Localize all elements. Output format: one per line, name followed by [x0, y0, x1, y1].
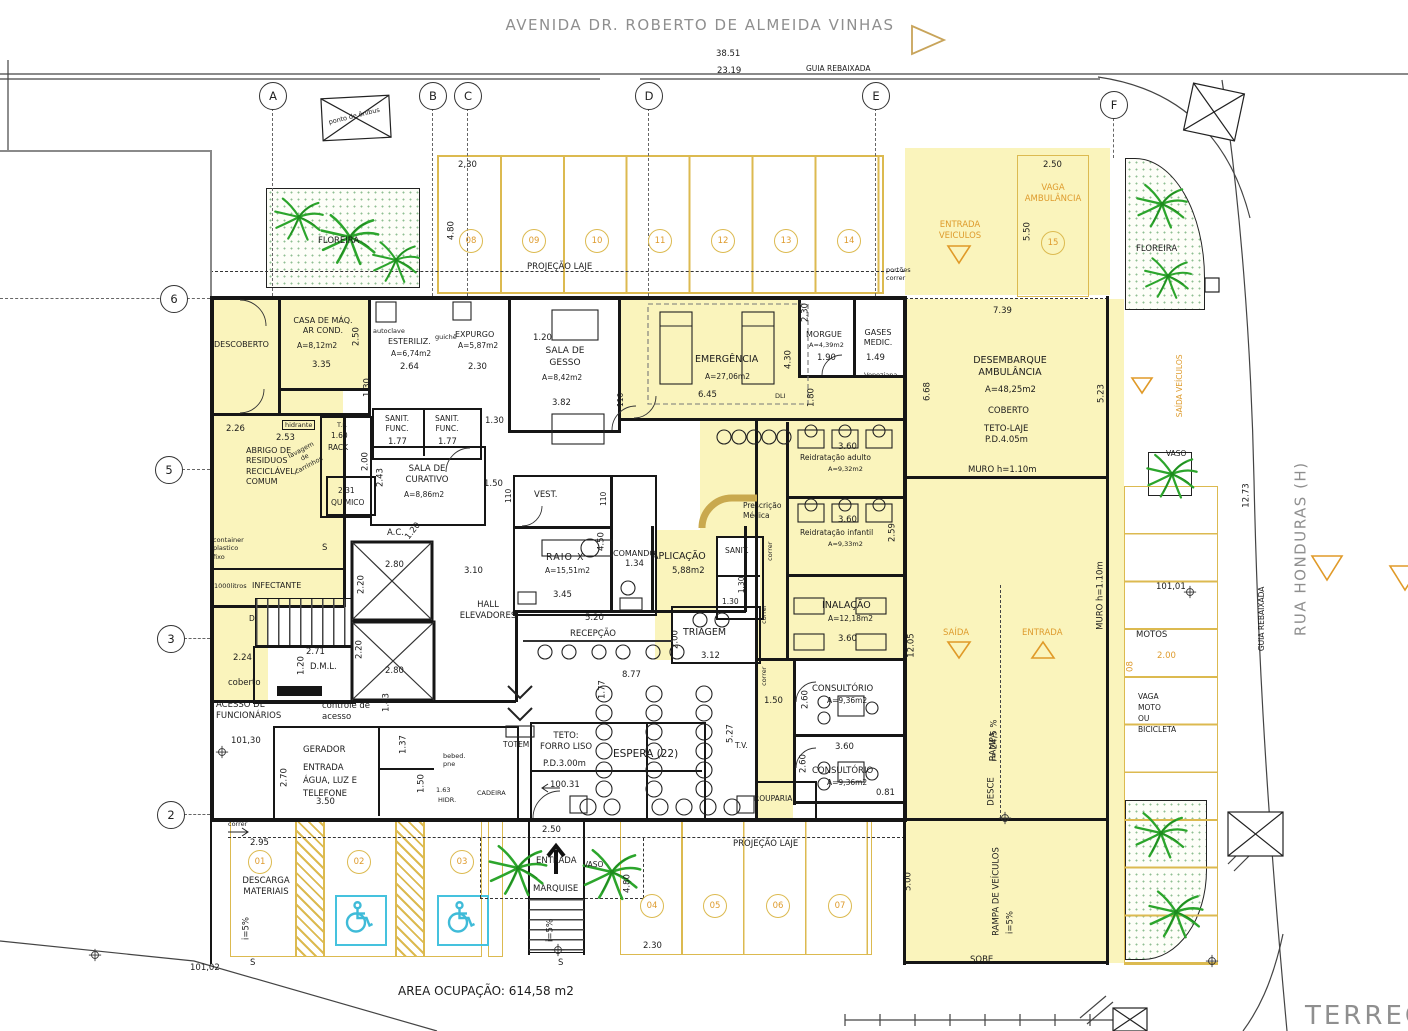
dim-668: 6.68 [922, 372, 933, 412]
portoes-correr: portões correr [886, 266, 911, 283]
stall-number: 02 [354, 857, 365, 867]
gerador-w: 3.50 [316, 797, 335, 808]
dim-295: 2.95 [250, 838, 269, 849]
acesso-name: ACESSO DE FUNCIONÁRIOS [216, 700, 281, 722]
wall-i6 [508, 430, 621, 433]
saida-ramp: SAÍDA [943, 628, 969, 639]
reidrat-i-name: Reidratação infantil [800, 528, 873, 538]
wall-hall-corr [515, 610, 518, 702]
bottom-stall-height: 4.80 [622, 864, 633, 904]
ramp-centerline [1000, 585, 1001, 818]
wall-infectante [210, 568, 344, 570]
wall-muro [905, 476, 1106, 479]
marquise-label: MARQUISE [533, 884, 578, 895]
raiox-d110: 110 [599, 485, 609, 513]
acesso-ref: 101,30 [231, 736, 261, 747]
emergencia-d180: 1.80 [806, 381, 817, 415]
acesso-coberto: coberto [228, 678, 261, 689]
tv-d150: 1.50 [764, 696, 783, 707]
sanitc-d1: 1.30 [737, 570, 747, 600]
emergencia-d430: 4.30 [783, 342, 794, 378]
floor-plan-canvas: A B C D E F 6 5 3 2 08 09 10 11 12 13 14… [0, 0, 1408, 1031]
espera-ref: 100.31 [550, 780, 580, 791]
expurgo-area: A=5,87m2 [458, 341, 498, 351]
dml-w: 2.71 [306, 647, 325, 658]
desce-label: DESCE [986, 769, 997, 815]
wall-comando-w [610, 526, 613, 612]
prescricao-label: Prescrição Médica [743, 501, 781, 521]
parking-hatch-1 [295, 818, 325, 957]
raiox-name: RAIO X [546, 552, 585, 564]
ref-101-02: 101,02 [190, 963, 220, 974]
casa-maq-name: CASA DE MÁQ. AR COND. [285, 316, 361, 337]
consult2-area: A=9,36m2 [827, 778, 867, 788]
grid-label: 6 [170, 292, 177, 306]
bottom-stall-width: 2.30 [643, 941, 662, 952]
curativo-name: SALA DE CURATIVO [394, 464, 460, 486]
dim-143: 1.43 [381, 686, 392, 720]
tv-name: T.V. [735, 741, 748, 751]
floreira-tl: FLOREIRA [318, 236, 359, 247]
sanit-func1-w: 1.77 [388, 437, 407, 448]
avenue-dim: 38.51 [716, 49, 740, 60]
grid-col-a: A [259, 82, 287, 110]
controle-label: controle de acesso [322, 701, 370, 723]
wall-ger-bath-v [378, 726, 380, 816]
wall-consult-h1 [793, 734, 904, 737]
curativo-d150: 1.50 [484, 479, 503, 490]
top-stall-width: 2,30 [458, 160, 477, 171]
stall-09: 09 [522, 229, 546, 253]
casa-maq-area: A=8,12m2 [297, 341, 337, 351]
grid-line-a [272, 108, 273, 296]
expurgo-name: EXPURGO [455, 330, 494, 340]
emergencia-w: 6.45 [698, 390, 717, 401]
parking-hatch-2 [395, 818, 425, 957]
dim-1205: 12.05 [906, 624, 917, 668]
grid-row-6: 6 [160, 285, 188, 313]
avenue-name: AVENIDA DR. ROBERTO DE ALMEIDA VINHAS [500, 16, 900, 36]
grid-row-5: 5 [155, 456, 183, 484]
stall-12: 12 [711, 229, 735, 253]
quimico-name: QUÍMICO [331, 498, 364, 508]
sanitc-name: SANIT. [725, 546, 749, 556]
property-line-left [210, 150, 212, 296]
dim-500: 5.00 [903, 862, 914, 902]
vaso-bottom: VASO [583, 860, 603, 870]
stall-number: 05 [710, 901, 721, 911]
grid-line-e [875, 108, 876, 296]
dim-523: 5.23 [1096, 374, 1107, 414]
morgue-w: 1.90 [817, 353, 836, 364]
dml-h: 1.20 [296, 649, 307, 683]
s-left: S [250, 958, 255, 969]
aplicacao-area: 5,88m2 [672, 566, 705, 577]
area-ocupacao: AREA OCUPAÇÃO: 614,58 m2 [398, 984, 574, 1000]
consult2-name: CONSULTÓRIO [812, 766, 873, 777]
ref-101-01: 101,01 [1156, 582, 1186, 593]
desembarque-area: A=48,25m2 [985, 385, 1036, 396]
stall-number: 07 [835, 901, 846, 911]
wall-consult-h2 [793, 801, 904, 804]
handicap-stall-2 [437, 895, 489, 946]
inalacao-name: INALAÇÃO [822, 600, 871, 612]
stall-13: 13 [774, 229, 798, 253]
grid-line-5 [182, 469, 210, 470]
saida-veiculos: SAÍDA VEÍCULOS [1175, 346, 1185, 426]
parking-strip-entry [488, 818, 503, 957]
grid-line-3 [184, 638, 210, 639]
guia-rebaixada-side: GUIA REBAIXADA [1257, 569, 1267, 669]
expurgo-w: 2.30 [468, 362, 487, 373]
stall-01: 01 [248, 850, 272, 874]
wall-ramp-right [1106, 818, 1109, 965]
rack-h: 2.00 [360, 442, 371, 482]
wall-ram-bottom [903, 961, 1109, 964]
dim-253: 2.53 [276, 433, 295, 444]
guia-rebaixada-top: GUIA REBAIXADA [806, 64, 871, 74]
gases-w: 1.49 [866, 353, 885, 364]
ac-name: A.C. [387, 528, 404, 539]
grid-line-c [467, 108, 468, 296]
elev2-h: 2.20 [354, 632, 365, 668]
stall-02: 02 [347, 850, 371, 874]
rampa-slope: i= 24,5 % [989, 708, 1000, 774]
raiox-area: A=15,51m2 [545, 566, 590, 576]
wall-reidrat-h2 [786, 574, 904, 577]
stairs-s: S [322, 543, 327, 554]
stall-number: 01 [255, 857, 266, 867]
descoberto-name: DESCOBERTO [214, 340, 269, 350]
wall-inalacao-s [755, 658, 905, 661]
correr-bottom: correr [228, 820, 247, 828]
cadeira-label: CADEIRA [477, 789, 506, 797]
motos-num: 08 [1125, 657, 1136, 677]
curativo-h: 2.43 [375, 460, 386, 496]
curativo-d110: 110 [504, 482, 514, 510]
grid-label: A [269, 89, 277, 103]
recepcao-name: RECEPÇÃO [570, 629, 616, 640]
veneziana-label: Veneziana [864, 371, 897, 379]
emergencia-d110: 110 [616, 386, 626, 414]
dim-739: 7.39 [993, 306, 1012, 317]
emergencia-dli: DLI [775, 392, 786, 400]
rack-w: 1.60 [331, 431, 348, 441]
sanit-func2-w: 1.77 [438, 437, 457, 448]
muro-h: MURO h=1.10m [968, 465, 1037, 476]
stall-04: 04 [640, 894, 664, 918]
morgue-h: 2.30 [800, 295, 811, 331]
pd-label: P.D.3.00m [543, 759, 586, 770]
inalacao-area: A=12,18m2 [828, 614, 873, 624]
handicap-stall-1 [335, 895, 387, 946]
consult1-h: 2.60 [800, 682, 811, 718]
planter-top-right [1125, 158, 1205, 310]
morgue-area: A=4,39m2 [809, 341, 844, 349]
desembarque-pd: P.D.4.05m [985, 435, 1028, 446]
esteriliz-area: A=6,74m2 [391, 349, 431, 359]
motos-label: MOTOS [1136, 630, 1167, 641]
desembarque-teto: TETO-LAJE [984, 424, 1028, 435]
consult2-d081: 0.81 [876, 788, 895, 799]
entrada-label: ENTRADA [536, 856, 577, 867]
consult1-area: A=9,36m2 [827, 696, 867, 706]
litros-label: 1000litros [214, 582, 247, 590]
stall-03: 03 [450, 850, 474, 874]
property-line-left-low [210, 820, 212, 964]
stall-07: 07 [828, 894, 852, 918]
stall-number: 13 [781, 236, 792, 246]
gerador-h: 2.70 [279, 760, 290, 796]
tf-label: T.F. [337, 421, 347, 429]
wall-reidrat-w [786, 422, 789, 660]
sanit-func2-name: SANIT. FUNC. [428, 414, 466, 434]
bebed-label: bebed. pne [443, 752, 465, 769]
hidrante-label: hidrante [282, 420, 315, 430]
proj-laje-bottom: PROJEÇÃO LAJE [733, 839, 798, 850]
dim-177: 1.77 [597, 672, 608, 708]
autoclave-label: autoclave [373, 327, 405, 335]
floor-title: TERREO [1305, 1000, 1408, 1031]
quimico-d: 2.31 [338, 486, 355, 496]
dim-130-corr: 1.30 [362, 371, 373, 405]
casa-maq-h: 2.50 [351, 317, 362, 357]
avenue-dim2: 23.19 [717, 66, 741, 77]
entrada-ramp: ENTRADA [1022, 628, 1063, 639]
triagem-w: 3.12 [701, 651, 720, 662]
vaga-moto-label: VAGA MOTO OU BICICLETA [1138, 692, 1176, 736]
stall-number: 09 [529, 236, 540, 246]
service-bar [277, 686, 322, 696]
elev1-w: 2.80 [385, 560, 404, 571]
zone-desembarque-rampa [905, 299, 1124, 963]
grid-col-e: E [862, 82, 890, 110]
stall-number: 10 [592, 236, 603, 246]
marquise-dash-right [643, 838, 644, 898]
guiche-label: guichê [435, 333, 457, 341]
proj-laje-top: PROJEÇÃO LAJE [527, 262, 592, 273]
zone-corridor-mid [700, 418, 903, 530]
grid-col-b: B [419, 82, 447, 110]
stall-08: 08 [459, 229, 483, 253]
descarga-label: DESCARGA MATERIAIS [235, 876, 297, 898]
gases-name: GASES MEDIC. [856, 328, 900, 349]
top-stall-height: 4.80 [446, 211, 457, 251]
rua-honduras: RUA HONDURAS (H) [1291, 424, 1311, 674]
desembarque-name: DESEMBARQUE AMBULÂNCIA [960, 355, 1060, 380]
grid-row-3: 3 [157, 625, 185, 653]
wall-rouparia-e [815, 781, 817, 818]
rack-name: RACK [328, 443, 348, 453]
comando-w: 1.34 [625, 559, 644, 570]
bus-stop-label: ponto de ônibus [328, 106, 381, 127]
dim-310: 3.10 [464, 566, 483, 577]
gesso-name: SALA DE GESSO [535, 346, 595, 369]
rampa-veic-slope: i=5% [1005, 906, 1016, 940]
emergencia-name: EMERGÊNCIA [695, 354, 758, 366]
curativo-area: A=8,86m2 [404, 490, 444, 500]
proj-laje-bottom-line [228, 837, 905, 838]
reidrat-a-w: 3.60 [838, 442, 857, 453]
raiox-w: 3.45 [553, 590, 572, 601]
ban-d163: 1.63 [436, 786, 450, 794]
grid-label: 5 [165, 463, 172, 477]
stall-number: 15 [1048, 238, 1059, 248]
grid-col-d: D [635, 82, 663, 110]
motos-dim: 2.00 [1157, 651, 1176, 662]
espera-d250: 2.50 [542, 825, 561, 836]
stall-06: 06 [766, 894, 790, 918]
entrance-slope: i=5% [545, 914, 556, 948]
vest-name: VEST. [534, 490, 557, 501]
descoberto-dim: 2.26 [226, 424, 245, 435]
wall-reidrat-h1 [786, 496, 904, 499]
wall-i8 [618, 418, 906, 421]
entrada-veiculos: ENTRADA VEICULOS [930, 220, 990, 242]
consult1-name: CONSULTÓRIO [812, 684, 873, 695]
hidr-label: HIDR. [438, 796, 456, 804]
wall-consult-w [793, 660, 796, 805]
container-label: container plastico fixo [213, 536, 244, 561]
grid-label: C [464, 89, 472, 103]
aplicacao-name: APLICAÇÃO [652, 551, 706, 563]
wall-vest-e [610, 475, 613, 526]
consult2-h: 2.60 [798, 746, 809, 782]
stall-14: 14 [837, 229, 861, 253]
sanit-func1-name: SANIT. FUNC. [378, 414, 416, 434]
gesso-area: A=8,42m2 [542, 373, 582, 383]
dim-130-e: 1.30 [485, 416, 504, 427]
gerador-sub: ENTRADA ÁGUA, LUZ E TELEFONE [303, 762, 357, 800]
sanitc-d2: 1.30 [722, 597, 739, 607]
sobe-label: SOBE [970, 955, 993, 966]
wall-ban-h [530, 770, 702, 772]
grid-line-f [1113, 118, 1114, 158]
elev1-h: 2.20 [356, 567, 367, 603]
reidrat-i-w: 3.60 [838, 515, 857, 526]
muro-v: MURO h=1.10m [1095, 541, 1106, 651]
grid-line-d [648, 108, 649, 296]
wall-ban-v [646, 722, 648, 818]
stall-10: 10 [585, 229, 609, 253]
acesso-d224: 2.24 [233, 653, 252, 664]
grid-label: B [429, 89, 437, 103]
stairs-main [255, 598, 352, 646]
correr-3: correr [760, 659, 768, 693]
stall-number: 04 [647, 901, 658, 911]
wall-i2 [278, 388, 370, 391]
triagem-name: TRIAGEM [683, 627, 726, 639]
grid-label: 3 [167, 632, 174, 646]
correr-2: correr [760, 597, 768, 631]
grid-label: F [1111, 98, 1118, 112]
slope-left: i=5% [241, 912, 252, 946]
recepcao-desk [523, 640, 673, 642]
stall-15: 15 [1041, 231, 1065, 255]
rampa-veiculos: RAMPA DE VEÍCULOS [991, 827, 1002, 957]
avenue-arrow-icon [912, 26, 944, 54]
stall-number: 14 [844, 236, 855, 246]
grid-label: 2 [167, 808, 174, 822]
reidrat-i-area: A=9,33m2 [828, 540, 863, 548]
dml-name: D.M.L. [310, 662, 337, 673]
wall-i1 [278, 296, 281, 415]
teto-label: TETO: FORRO LISO [528, 731, 604, 753]
stall-11: 11 [648, 229, 672, 253]
wall-comando-e [651, 526, 654, 612]
side-dim: 12.73 [1241, 474, 1252, 518]
stall-number: 08 [466, 236, 477, 246]
room-quimico [326, 476, 376, 516]
marquise-dash-left [480, 838, 481, 898]
reidrat-a-name: Reidratação adulto [800, 453, 871, 463]
emergencia-area: A=27,06m2 [705, 372, 750, 382]
stall-number: 03 [457, 857, 468, 867]
elev2-w: 2.80 [385, 666, 404, 677]
inalacao-w: 3.60 [838, 634, 857, 645]
grid-label: D [645, 89, 654, 103]
reidrat-i-h: 2.59 [887, 515, 898, 551]
grid-label: E [872, 89, 879, 103]
grid-line-b [432, 108, 433, 296]
consult2-w: 3.60 [835, 742, 854, 753]
stall-05: 05 [703, 894, 727, 918]
gesso-w: 3.82 [552, 398, 571, 409]
dim-877: 8.77 [622, 670, 641, 681]
desembarque-coberto: COBERTO [988, 406, 1029, 417]
grid-col-f: F [1100, 91, 1128, 119]
raiox-h: 4.50 [596, 524, 607, 560]
wall-desembarque-bottom [905, 818, 1109, 821]
morgue-name: MORGUE [806, 330, 842, 340]
comando-name: COMANDO [613, 549, 656, 559]
triagem-h: 2.00 [670, 623, 681, 657]
correr-1: correr [766, 534, 774, 568]
grid-col-c: C [454, 82, 482, 110]
totem-label: TOTEM [503, 740, 529, 750]
infectante-label: INFECTANTE [252, 581, 301, 591]
hall-label: HALL ELEVADORES [445, 600, 531, 622]
floreira-tr: FLOREIRA [1136, 244, 1177, 255]
reidrat-a-area: A=9,32m2 [828, 465, 863, 473]
stall-number: 11 [655, 236, 666, 246]
abrigo-name: ABRIGO DE RESIDUOS RECICLÁVEL/ COMUM [246, 446, 297, 488]
stall-number: 12 [718, 236, 729, 246]
parking-row-top [437, 155, 884, 294]
grid-row-2: 2 [157, 801, 185, 829]
wall-i5 [508, 296, 511, 432]
amb-h: 5.50 [1022, 212, 1033, 252]
desembarque-top-line [905, 298, 1108, 299]
ban-d150: 1.50 [416, 767, 427, 801]
esteriliz-name: ESTERILIZ. [388, 337, 431, 347]
stall-number: 06 [773, 901, 784, 911]
ban-d137: 1.37 [398, 728, 409, 762]
vaga-ambulancia: VAGA AMBULÂNCIA [1018, 183, 1088, 205]
casa-maq-w: 3.35 [312, 360, 331, 371]
esteriliz-w: 2.64 [400, 362, 419, 373]
entrance-s: S [558, 958, 563, 969]
stairs-d: D [249, 614, 255, 624]
recepcao-w: 5.20 [585, 613, 604, 624]
gesso-d120: 1.20 [533, 333, 552, 344]
espera-name: ESPERA (22) [613, 748, 678, 762]
gerador-name: GERADOR [303, 745, 345, 756]
vaso-right: VASO [1166, 449, 1186, 459]
amb-w: 2.50 [1043, 160, 1062, 171]
grid-line-2 [184, 814, 210, 815]
rouparia-name: ROUPARIA [754, 794, 792, 804]
